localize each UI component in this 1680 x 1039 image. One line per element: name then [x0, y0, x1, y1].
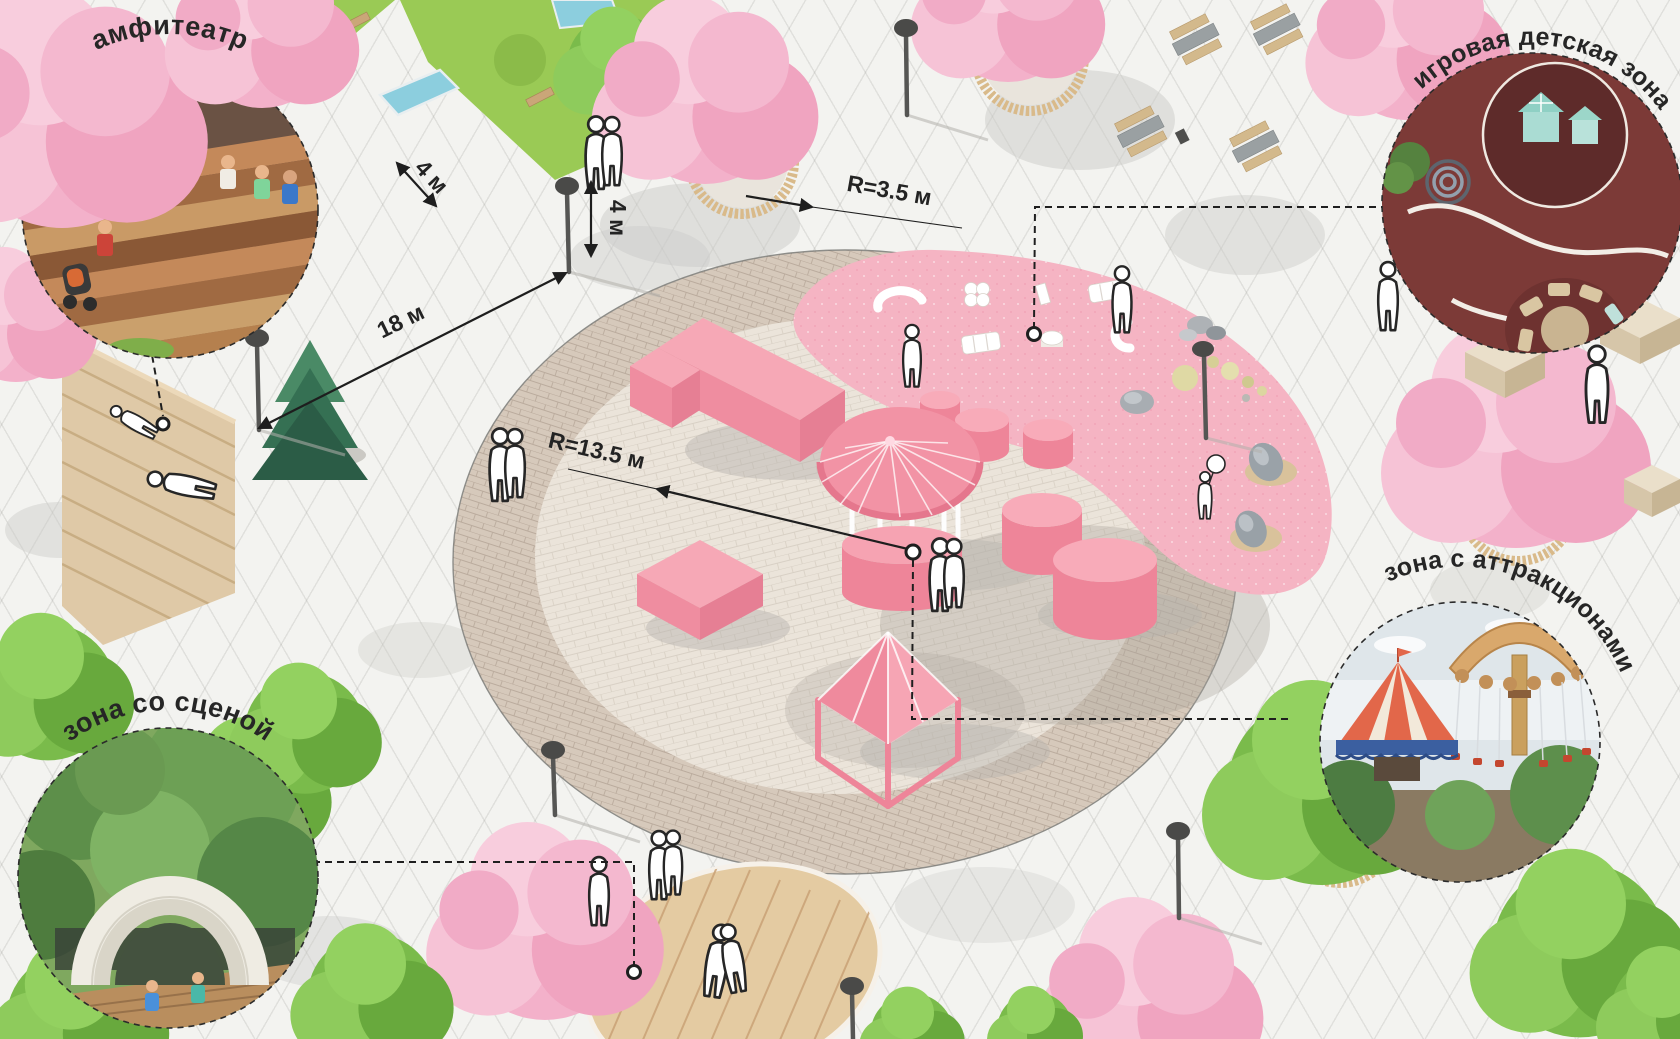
site-plan-illustration: 4 м 4 м 18 м R=3.5 м R=13.5 м	[0, 0, 1680, 1039]
dimension-label: 18 м	[373, 298, 428, 343]
pouf	[1041, 331, 1063, 347]
dimension-label: R=3.5 м	[845, 170, 934, 210]
blossom-tree	[911, 0, 1105, 82]
park-masterplan: 4 м 4 м 18 м R=3.5 м R=13.5 м	[0, 0, 1680, 1039]
green-tree	[859, 987, 965, 1039]
spruce-tree	[252, 340, 368, 480]
dimension-label: 4 м	[605, 200, 631, 236]
dimension-label: 4 м	[410, 154, 454, 198]
dimension-grid-step: 4 м	[397, 154, 454, 206]
fountain-pool	[380, 70, 458, 115]
stage-arch	[85, 890, 255, 985]
blossom-tree	[426, 822, 664, 1020]
litter-bin	[1175, 128, 1190, 144]
